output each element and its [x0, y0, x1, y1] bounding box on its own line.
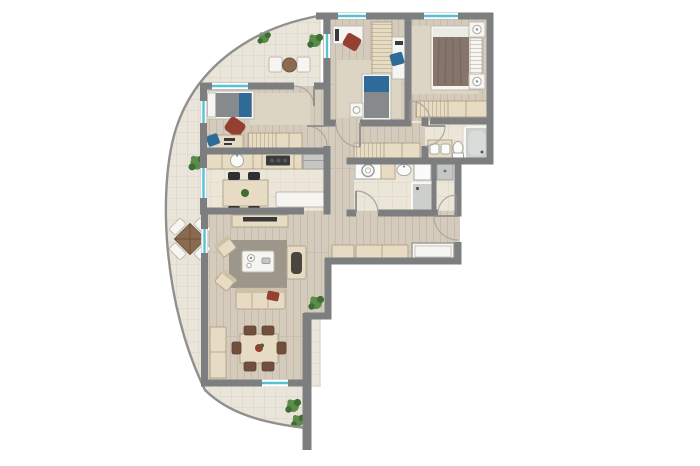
- kitchen-chair: [228, 172, 240, 180]
- dresser-hatch: [248, 133, 276, 149]
- balcony-chair: [269, 57, 282, 72]
- shower: [412, 183, 433, 212]
- dining-chair: [277, 342, 286, 354]
- window: [262, 380, 288, 386]
- desk-keyboard-icon: [224, 143, 232, 145]
- table-plant-icon: [241, 189, 249, 197]
- dining-chair: [244, 326, 256, 335]
- laundry-counter: [381, 162, 395, 179]
- side-desk-laptop-icon: [395, 41, 403, 45]
- tv-icon: [243, 217, 277, 222]
- drain-icon: [416, 187, 419, 190]
- shoe-cabinet-small: [332, 245, 354, 258]
- window: [324, 34, 330, 58]
- window-bench: [276, 192, 330, 207]
- balcony-chair: [297, 57, 310, 72]
- lamp-icon: [353, 107, 360, 114]
- monitor-icon: [335, 29, 339, 41]
- middle-bed-blanket: [364, 92, 389, 118]
- accent-chair-seat: [291, 252, 302, 274]
- sofa-back: [236, 288, 285, 293]
- window: [200, 101, 206, 123]
- hallway-furniture: [332, 243, 454, 260]
- bath-cabinet: [414, 162, 431, 180]
- drain-icon: [481, 151, 484, 154]
- window: [338, 13, 366, 19]
- window: [212, 83, 248, 89]
- round-table: [283, 58, 297, 72]
- desk-laptop-icon: [224, 138, 235, 141]
- dining-chair: [244, 362, 256, 371]
- decor-cup-icon: [247, 263, 251, 267]
- wc-furniture: [437, 163, 453, 180]
- dining-chair: [262, 326, 274, 335]
- bed-throw: [239, 93, 251, 117]
- corridor-closet: [354, 143, 420, 158]
- window: [201, 229, 207, 253]
- room-corridor: [328, 121, 354, 215]
- dining-chair: [262, 362, 274, 371]
- dining-chair: [232, 342, 241, 354]
- window: [200, 168, 206, 198]
- decor-tray-icon: [262, 258, 270, 264]
- toilet-tank: [453, 153, 464, 158]
- outside-mask: [310, 387, 356, 466]
- left-bedroom-rug: [250, 93, 310, 125]
- window: [424, 13, 458, 19]
- wardrobe-hatch: [372, 22, 392, 76]
- middle-bed-pillow: [364, 76, 389, 92]
- bed-pillow: [208, 93, 216, 117]
- sideboard: [210, 327, 226, 378]
- kitchen-chair: [248, 172, 260, 180]
- floor-plan-canvas: [0, 0, 700, 466]
- sink-icon: [441, 144, 450, 154]
- floor-plan: [0, 0, 700, 466]
